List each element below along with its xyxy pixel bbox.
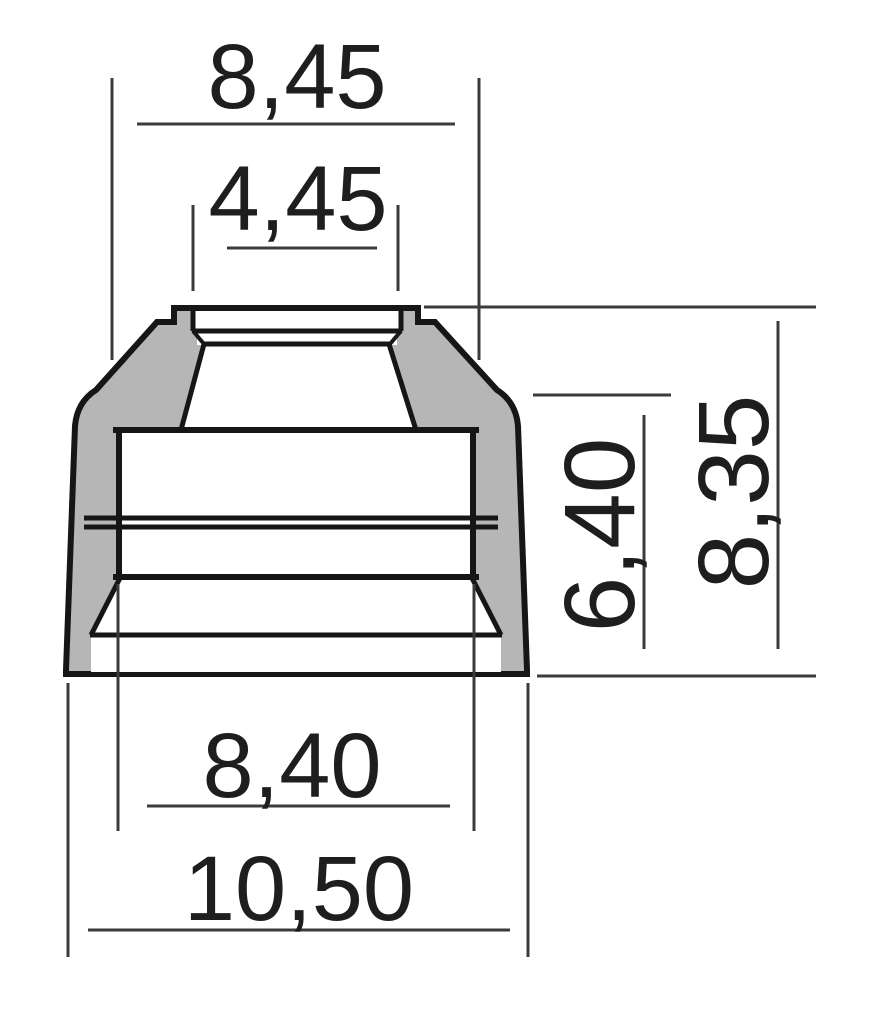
spring-chamber-cavity: [119, 429, 473, 578]
dimension-body-height: 6,40: [533, 395, 671, 649]
dimension-label: 4,45: [208, 148, 387, 250]
dimension-label: 10,50: [184, 838, 414, 940]
base-band-cavity: [91, 634, 501, 672]
lower-flare-cavity: [91, 577, 501, 635]
stem-bore-cavity: [181, 344, 416, 430]
dimension-label: 6,40: [544, 438, 656, 633]
dimension-label: 8,40: [202, 715, 381, 817]
seal-cross-section: [66, 308, 527, 674]
dimension-label: 8,45: [207, 26, 386, 128]
valve-stem-seal-drawing: 8,45 4,45 6,40 8,35 8,40: [0, 0, 879, 1024]
drawing-canvas: 8,45 4,45 6,40 8,35 8,40: [0, 0, 879, 1024]
dimension-label: 8,35: [678, 395, 790, 590]
dimension-lip-inner-diameter: 4,45: [193, 148, 398, 291]
